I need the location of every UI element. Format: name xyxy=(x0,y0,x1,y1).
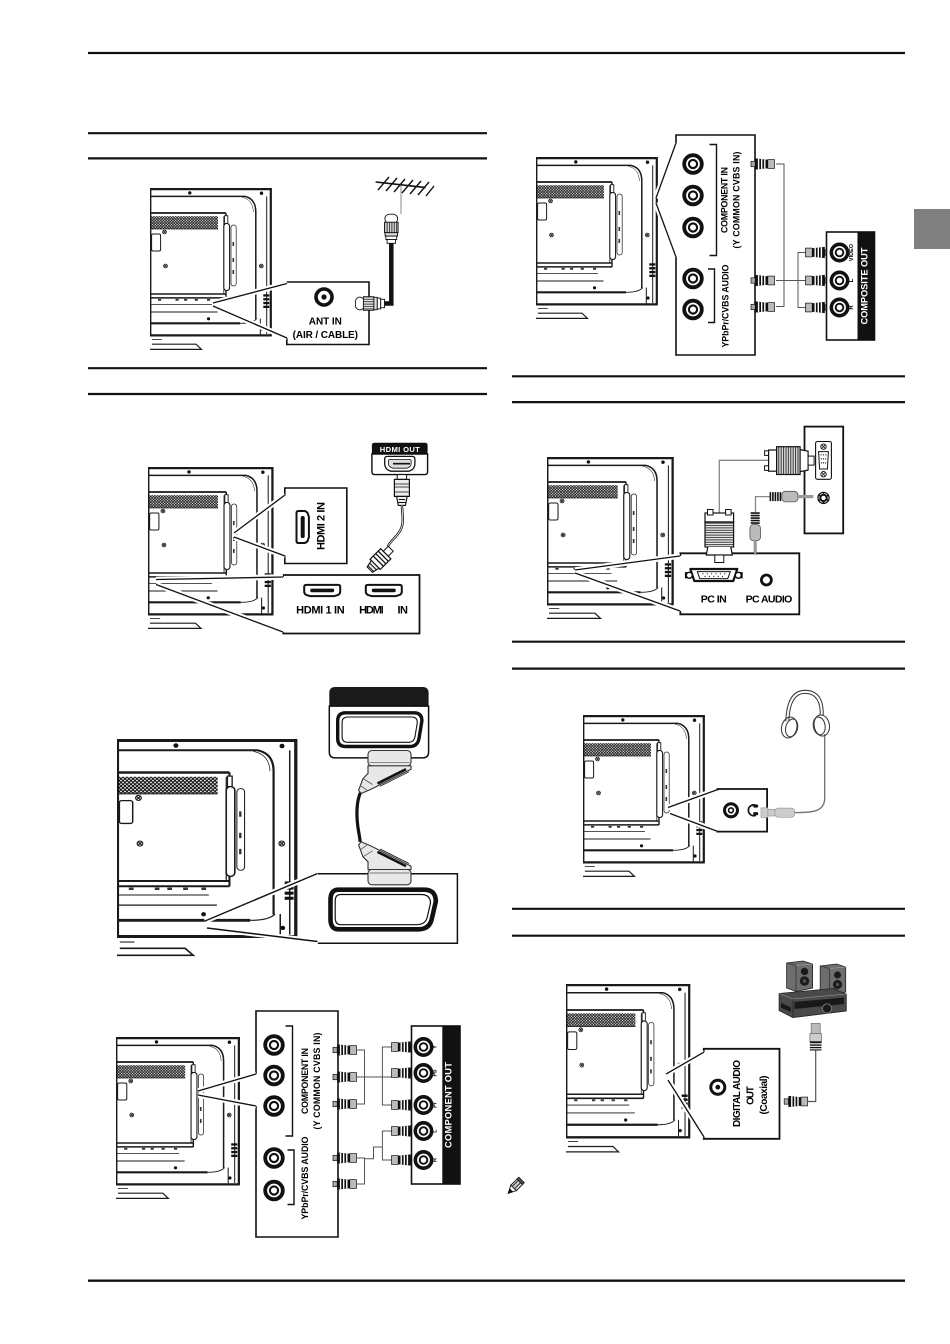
svg-text:YPbPr/CVBS AUDIO: YPbPr/CVBS AUDIO xyxy=(721,264,731,347)
svg-text:ANT IN: ANT IN xyxy=(309,316,342,327)
svg-text:HDMI 2 IN: HDMI 2 IN xyxy=(316,502,328,550)
svg-text:(Y COMMON CVBS IN): (Y COMMON CVBS IN) xyxy=(312,1032,322,1129)
svg-text:VIDEO: VIDEO xyxy=(849,243,855,261)
svg-text:PC IN: PC IN xyxy=(701,593,727,605)
svg-text:HDMI 1 IN: HDMI 1 IN xyxy=(296,605,345,617)
svg-text:COMPONENT IN: COMPONENT IN xyxy=(300,1048,310,1114)
svg-text:(AIR / CABLE): (AIR / CABLE) xyxy=(293,330,358,341)
svg-text:(Coaxial): (Coaxial) xyxy=(759,1076,770,1115)
svg-text:Pr: Pr xyxy=(433,1101,439,1108)
svg-text:YPbPr/CVBS AUDIO: YPbPr/CVBS AUDIO xyxy=(300,1136,310,1219)
svg-text:(Y COMMON CVBS IN): (Y COMMON CVBS IN) xyxy=(732,151,742,248)
svg-text:Y: Y xyxy=(433,1045,439,1049)
svg-text:R: R xyxy=(433,1158,439,1162)
svg-text:OUT: OUT xyxy=(745,1086,756,1105)
svg-text:DIGITAL AUDIO: DIGITAL AUDIO xyxy=(732,1060,743,1127)
svg-text:COMPOSITE OUT: COMPOSITE OUT xyxy=(860,247,870,324)
svg-text:PC AUDIO: PC AUDIO xyxy=(746,593,793,605)
svg-text:R: R xyxy=(849,305,855,310)
svg-text:HDMI: HDMI xyxy=(359,605,384,617)
svg-text:Pb: Pb xyxy=(433,1069,439,1077)
svg-text:L: L xyxy=(849,278,855,282)
svg-text:HDMI OUT: HDMI OUT xyxy=(380,445,420,454)
svg-text:COMPONENT IN: COMPONENT IN xyxy=(720,167,730,233)
svg-text:IN: IN xyxy=(397,605,408,617)
svg-text:COMPONENT OUT: COMPONENT OUT xyxy=(443,1062,453,1148)
